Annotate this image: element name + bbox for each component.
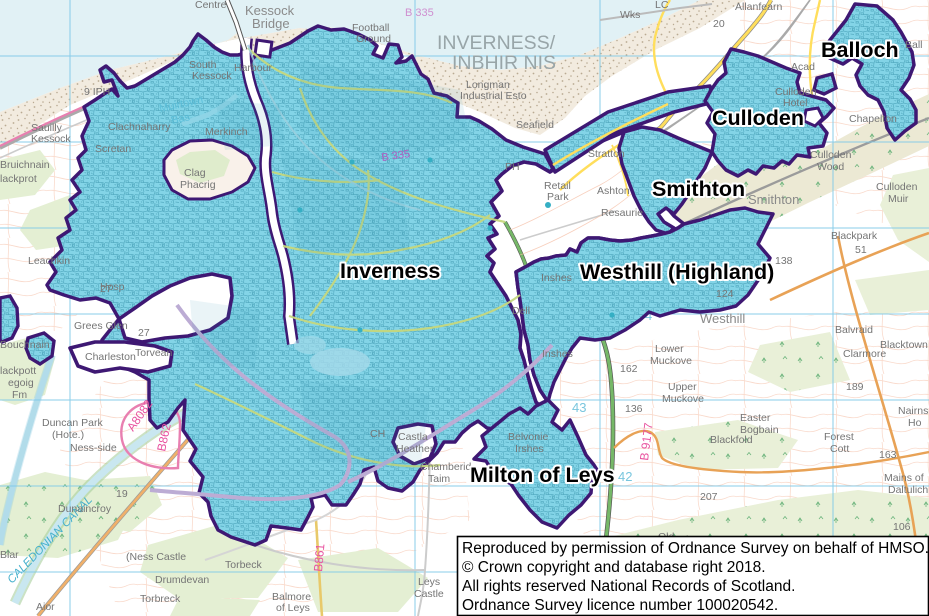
svg-text:Milton of Leys: Milton of Leys	[470, 463, 615, 487]
svg-text:lackpott: lackpott	[0, 365, 36, 377]
svg-text:Fm: Fm	[12, 389, 27, 401]
svg-text:Castla: Castla	[398, 431, 428, 443]
svg-text:106: 106	[893, 521, 911, 533]
svg-text:Blackpark: Blackpark	[831, 230, 878, 242]
svg-text:B861: B861	[311, 543, 327, 572]
svg-text:Aior: Aior	[36, 601, 55, 613]
svg-text:Clarmore: Clarmore	[843, 348, 886, 360]
svg-text:Inshes: Inshes	[542, 348, 573, 360]
svg-text:163: 163	[879, 449, 897, 461]
svg-text:Clag: Clag	[184, 167, 206, 179]
svg-text:of Leys: of Leys	[276, 602, 310, 614]
svg-text:42: 42	[618, 469, 632, 484]
svg-text:124: 124	[716, 288, 734, 300]
svg-text:162: 162	[620, 363, 638, 375]
svg-text:LC: LC	[655, 0, 669, 11]
svg-text:Inverness: Inverness	[340, 259, 440, 283]
svg-text:Chamberid: Chamberid	[420, 461, 472, 473]
svg-text:Torvean: Torvean	[135, 347, 173, 359]
svg-text:Forest: Forest	[824, 431, 854, 443]
svg-text:INVERNESS/: INVERNESS/	[437, 32, 556, 54]
svg-text:Belvonie: Belvonie	[508, 431, 548, 443]
svg-text:Reproduced by permission of Or: Reproduced by permission of Ordnance Sur…	[462, 540, 929, 557]
svg-text:Harbour: Harbour	[234, 62, 272, 74]
svg-text:Muckove: Muckove	[662, 393, 704, 405]
svg-text:Bruichnain: Bruichnain	[0, 159, 50, 171]
svg-text:Blacktown: Blacktown	[880, 339, 928, 351]
svg-text:Scretan: Scretan	[95, 143, 131, 155]
svg-text:Seafield: Seafield	[516, 119, 554, 131]
svg-text:(Hote.): (Hote.)	[52, 429, 84, 441]
svg-text:Easter: Easter	[740, 412, 771, 424]
svg-text:Irshes: Irshes	[515, 443, 544, 455]
svg-text:(Ness Castle: (Ness Castle	[126, 551, 186, 563]
svg-text:Bridge: Bridge	[252, 16, 290, 31]
svg-text:136: 136	[625, 403, 643, 415]
svg-text:Acad: Acad	[791, 61, 815, 73]
svg-text:lackprot: lackprot	[0, 173, 37, 185]
svg-text:egoig: egoig	[8, 377, 34, 389]
svg-text:Mains of: Mains of	[884, 472, 924, 484]
svg-text:Stratton: Stratton	[588, 148, 625, 160]
svg-text:51: 51	[855, 244, 867, 256]
svg-text:Kessock: Kessock	[31, 133, 71, 145]
svg-text:Dell: Dell	[512, 305, 530, 317]
svg-text:Grees Glen: Grees Glen	[74, 320, 128, 332]
svg-text:B 335: B 335	[405, 7, 434, 19]
svg-text:Blackfold: Blackfold	[710, 434, 753, 446]
svg-text:Lower: Lower	[655, 343, 684, 355]
svg-text:19: 19	[116, 488, 128, 500]
svg-text:Blar: Blar	[0, 549, 19, 561]
svg-text:Nairns: Nairns	[898, 405, 928, 417]
svg-text:Industrial Esto: Industrial Esto	[460, 90, 527, 102]
svg-text:Ness-side: Ness-side	[70, 442, 117, 454]
svg-text:Wks: Wks	[620, 9, 640, 21]
svg-text:Daltulich: Daltulich	[888, 484, 928, 496]
svg-text:Leachkin: Leachkin	[28, 255, 70, 267]
svg-text:Allanfearn: Allanfearn	[735, 1, 782, 13]
svg-text:Westhill: Westhill	[700, 311, 745, 326]
svg-text:Westhill (Highland): Westhill (Highland)	[580, 260, 774, 284]
svg-text:All rights reserved National R: All rights reserved National Records of …	[462, 578, 795, 595]
svg-text:138: 138	[775, 255, 793, 267]
svg-text:CH: CH	[370, 428, 385, 440]
svg-text:Muir: Muir	[888, 193, 909, 205]
svg-text:Merkinch: Merkinch	[205, 126, 248, 138]
svg-text:Smithton: Smithton	[652, 177, 745, 201]
svg-text:© Crown copyright and database: © Crown copyright and database right 201…	[462, 559, 766, 576]
svg-text:Ashton: Ashton	[597, 185, 630, 197]
svg-text:Torbeck: Torbeck	[225, 559, 263, 571]
svg-text:Duncan Park: Duncan Park	[42, 417, 103, 429]
svg-text:9 IPH: 9 IPH	[84, 86, 110, 98]
svg-text:Culloden: Culloden	[712, 106, 804, 130]
svg-text:Hosp: Hosp	[100, 281, 125, 293]
svg-text:43: 43	[572, 400, 586, 415]
svg-text:27: 27	[138, 327, 150, 339]
svg-text:Clachnaharry: Clachnaharry	[108, 121, 171, 133]
svg-text:Culloden: Culloden	[810, 149, 852, 161]
svg-text:Ball: Ball	[905, 39, 923, 51]
svg-text:Muckove: Muckove	[650, 355, 692, 367]
svg-text:Ground: Ground	[356, 33, 391, 45]
svg-text:Taim: Taim	[428, 473, 450, 485]
svg-text:Balloch: Balloch	[821, 38, 899, 62]
svg-text:Wood: Wood	[817, 161, 844, 173]
svg-text:Phacrig: Phacrig	[180, 179, 216, 191]
svg-text:Inshes: Inshes	[541, 272, 572, 284]
svg-text:INBHIR NIS: INBHIR NIS	[452, 52, 556, 74]
svg-text:Torbreck: Torbreck	[140, 593, 181, 605]
svg-text:Upper: Upper	[668, 381, 697, 393]
svg-text:Dunaincroy: Dunaincroy	[58, 503, 112, 515]
svg-text:189: 189	[846, 381, 864, 393]
svg-text:207: 207	[700, 491, 718, 503]
svg-text:Heather: Heather	[396, 443, 434, 455]
svg-text:Cott: Cott	[830, 443, 849, 455]
svg-text:Culloden: Culloden	[876, 181, 918, 193]
svg-text:Park: Park	[547, 191, 569, 203]
svg-text:Chapelton: Chapelton	[849, 113, 897, 125]
svg-text:Resaurie: Resaurie	[601, 207, 643, 219]
svg-text:Bouchnain: Bouchnain	[0, 339, 50, 351]
svg-text:Kessock: Kessock	[192, 70, 232, 82]
svg-text:20: 20	[713, 18, 725, 30]
svg-text:Ordnance Survey licence number: Ordnance Survey licence number 100020542…	[462, 597, 778, 614]
svg-text:Centre: Centre	[195, 0, 227, 11]
svg-text:PH: PH	[505, 161, 520, 173]
svg-text:Charleston: Charleston	[85, 351, 136, 363]
svg-text:Leys: Leys	[418, 576, 440, 588]
svg-text:Castle: Castle	[414, 588, 444, 600]
svg-text:Drumdevan: Drumdevan	[155, 574, 209, 586]
svg-text:Balvraid: Balvraid	[835, 324, 873, 336]
svg-text:Smithton: Smithton	[748, 192, 799, 207]
svg-text:Ho: Ho	[908, 417, 922, 429]
